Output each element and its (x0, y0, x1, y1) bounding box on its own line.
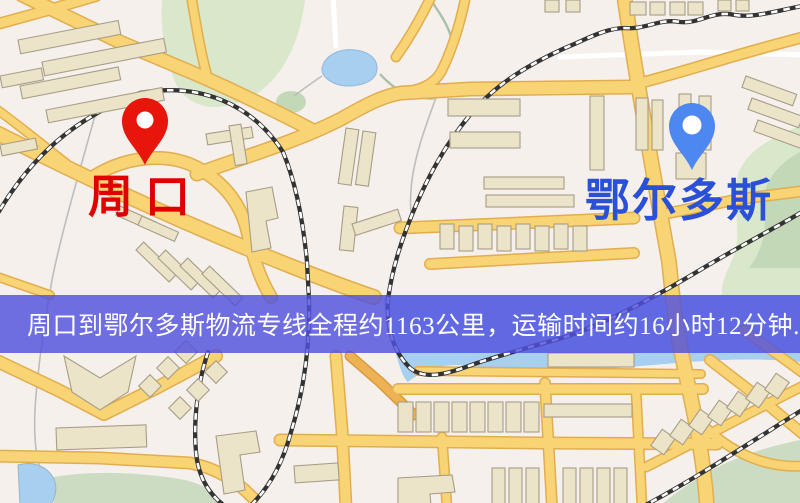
map-viewport[interactable]: 周口 鄂尔多斯 周口到鄂尔多斯物流专线全程约1163公里，运输时间约16小时12… (0, 0, 800, 503)
route-info-banner: 周口到鄂尔多斯物流专线全程约1163公里，运输时间约16小时12分钟. (0, 295, 800, 353)
route-info-text: 周口到鄂尔多斯物流专线全程约1163公里，运输时间约16小时12分钟. (27, 306, 800, 342)
map-graphic (0, 0, 800, 503)
destination-city-label: 鄂尔多斯 (585, 178, 773, 223)
origin-city-label: 周口 (88, 174, 202, 219)
origin-pin-hole (137, 112, 154, 129)
destination-pin-hole (683, 116, 702, 135)
